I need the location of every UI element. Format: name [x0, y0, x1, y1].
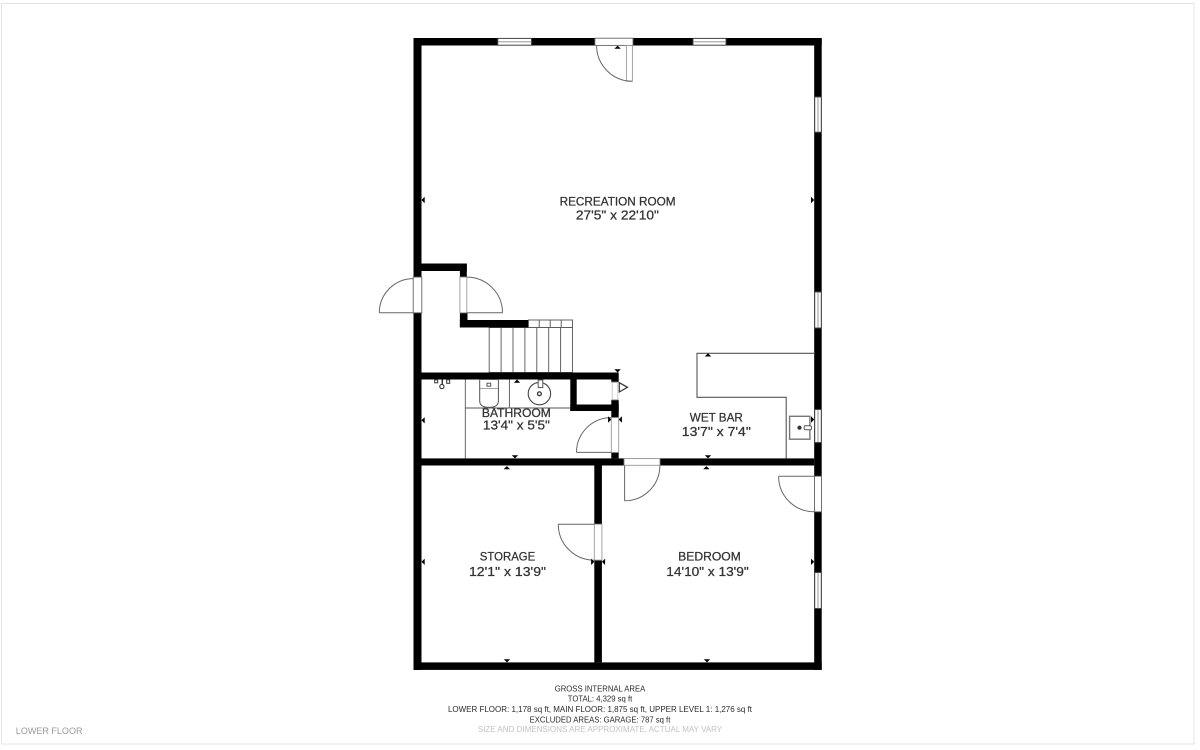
- svg-text:BEDROOM: BEDROOM: [678, 551, 741, 564]
- svg-text:27'5" x 22'10": 27'5" x 22'10": [576, 209, 659, 223]
- svg-text:13'4" x 5'5": 13'4" x 5'5": [483, 418, 550, 432]
- svg-text:LOWER FLOOR: LOWER FLOOR: [16, 726, 83, 736]
- svg-text:WET BAR: WET BAR: [690, 412, 743, 425]
- svg-text:TOTAL: 4,329 sq ft: TOTAL: 4,329 sq ft: [568, 694, 633, 704]
- svg-text:12'1" x 13'9": 12'1" x 13'9": [469, 565, 546, 579]
- svg-text:14'10" x 13'9": 14'10" x 13'9": [666, 565, 748, 579]
- svg-text:LOWER FLOOR: 1,178 sq ft, MAIN: LOWER FLOOR: 1,178 sq ft, MAIN FLOOR: 1,…: [448, 704, 753, 714]
- svg-text:EXCLUDED AREAS: GARAGE: 787 sq: EXCLUDED AREAS: GARAGE: 787 sq ft: [530, 714, 671, 724]
- svg-text:SIZE AND DIMENSIONS ARE APPROX: SIZE AND DIMENSIONS ARE APPROXIMATE, ACT…: [478, 724, 723, 734]
- svg-text:RECREATION ROOM: RECREATION ROOM: [560, 196, 676, 209]
- svg-text:STORAGE: STORAGE: [480, 551, 536, 564]
- svg-text:GROSS INTERNAL AREA: GROSS INTERNAL AREA: [555, 683, 646, 693]
- svg-text:13'7" x 7'4": 13'7" x 7'4": [682, 425, 751, 439]
